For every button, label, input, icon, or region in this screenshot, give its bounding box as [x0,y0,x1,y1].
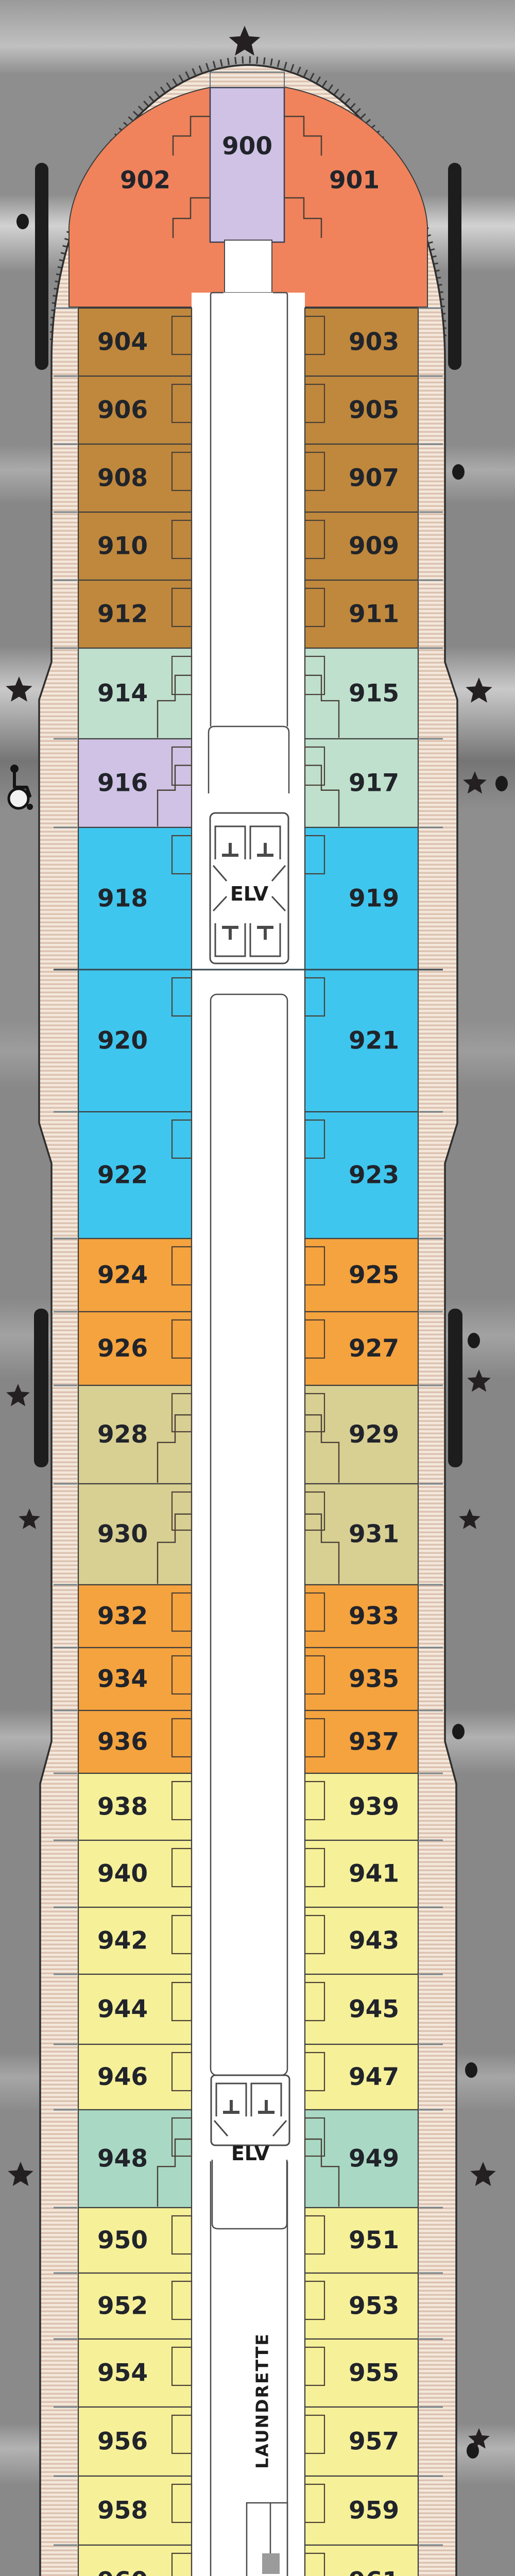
hall-aft-stair-landing [212,2160,287,2229]
cabin-929-label: 929 [349,1420,399,1449]
cabin-960-label: 960 [97,2567,148,2576]
cabin-939-label: 939 [349,1793,399,1821]
star-icon [466,677,492,703]
cabin-904-label: 904 [97,328,148,357]
lifeboat-bar-icon [448,163,461,370]
suite-902-label: 902 [120,166,170,195]
cabin-903-label: 903 [349,328,399,357]
cabin-906-label: 906 [97,396,148,425]
cabin-938-label: 938 [97,1793,148,1821]
suite-900-block [210,88,284,242]
cabin-936-label: 936 [97,1728,148,1756]
cabin-910-label: 910 [97,532,148,561]
porthole-dot-icon [452,1724,465,1739]
deck-plan-svg: 9049039069059089079109099129119149159169… [0,0,515,2576]
cabin-955-label: 955 [349,2359,399,2387]
cabin-930-label: 930 [97,1520,148,1549]
cabin-922-label: 922 [97,1161,148,1190]
washer-icon [262,2553,280,2574]
star-icon [470,2162,495,2186]
aft-elevator-lobby [211,2075,289,2145]
forward-elevator-label: ELV [230,883,269,905]
cabin-907-label: 907 [349,464,399,493]
cabin-945-label: 945 [349,1995,399,2024]
cabin-915-label: 915 [349,680,399,708]
cabin-914-label: 914 [97,680,148,708]
cabin-909-label: 909 [349,532,399,561]
porthole-dot-icon [468,1333,480,1348]
cabin-916-label: 916 [97,769,148,798]
cabin-924-label: 924 [97,1261,148,1290]
cabin-948-label: 948 [97,2145,148,2173]
cabin-934-label: 934 [97,1665,148,1693]
suite-901-label: 901 [329,166,380,195]
lifeboat-bar-icon [35,163,48,370]
cabin-933-label: 933 [349,1602,399,1631]
star-icon [6,676,32,702]
cabin-943-label: 943 [349,1927,399,1955]
cabin-917-label: 917 [349,769,399,798]
porthole-dot-icon [495,776,508,791]
star-icon [229,26,261,56]
cabin-950-label: 950 [97,2226,148,2255]
cabin-912-label: 912 [97,600,148,629]
lifeboat-bar-icon [448,1309,462,1467]
cabin-926-label: 926 [97,1334,148,1363]
star-icon [19,1509,40,1529]
cabin-908-label: 908 [97,464,148,493]
cabin-928-label: 928 [97,1420,148,1449]
cabin-957-label: 957 [349,2428,399,2456]
cabin-921-label: 921 [349,1027,399,1055]
porthole-dot-icon [465,2062,477,2078]
wheelchair-icon [9,765,33,810]
suite-900-label: 900 [222,132,272,161]
aft-elevator-label: ELV [231,2142,270,2165]
cabin-944-label: 944 [97,1995,148,2024]
cabin-927-label: 927 [349,1334,399,1363]
suite-900-balcony [210,72,284,88]
cabin-920-label: 920 [97,1027,148,1055]
laundrette-label: LAUNDRETTE [252,2333,272,2469]
porthole-dot-icon [16,214,29,229]
cabin-956-label: 956 [97,2428,148,2456]
cabin-925-label: 925 [349,1261,399,1290]
cabin-954-label: 954 [97,2359,148,2387]
cabin-941-label: 941 [349,1860,399,1888]
hall-fore-stair-landing [209,726,289,793]
cabin-947-label: 947 [349,2063,399,2091]
star-icon [467,1369,491,1392]
hall-mid [211,994,287,2075]
cabin-946-label: 946 [97,2063,148,2091]
corridor-vestibule [225,240,272,293]
cabin-905-label: 905 [349,396,399,425]
star-icon [8,2162,33,2186]
cabin-911-label: 911 [349,600,399,629]
cabin-958-label: 958 [97,2497,148,2525]
cabin-931-label: 931 [349,1520,399,1549]
cabin-959-label: 959 [349,2497,399,2525]
cabin-961-label: 961 [349,2567,399,2576]
cabin-952-label: 952 [97,2292,148,2320]
porthole-dot-icon [452,464,465,480]
cabin-951-label: 951 [349,2226,399,2255]
star-icon [463,771,487,793]
cabin-937-label: 937 [349,1728,399,1756]
cabin-935-label: 935 [349,1665,399,1693]
cabin-949-label: 949 [349,2145,399,2173]
cabin-918-label: 918 [97,885,148,913]
star-icon [459,1509,480,1529]
lifeboat-bar-icon [34,1309,48,1467]
cabin-942-label: 942 [97,1927,148,1955]
cabin-953-label: 953 [349,2292,399,2320]
cabin-932-label: 932 [97,1602,148,1631]
cabin-919-label: 919 [349,885,399,913]
cabin-923-label: 923 [349,1161,399,1190]
star-icon [6,1384,30,1406]
cabin-940-label: 940 [97,1860,148,1888]
